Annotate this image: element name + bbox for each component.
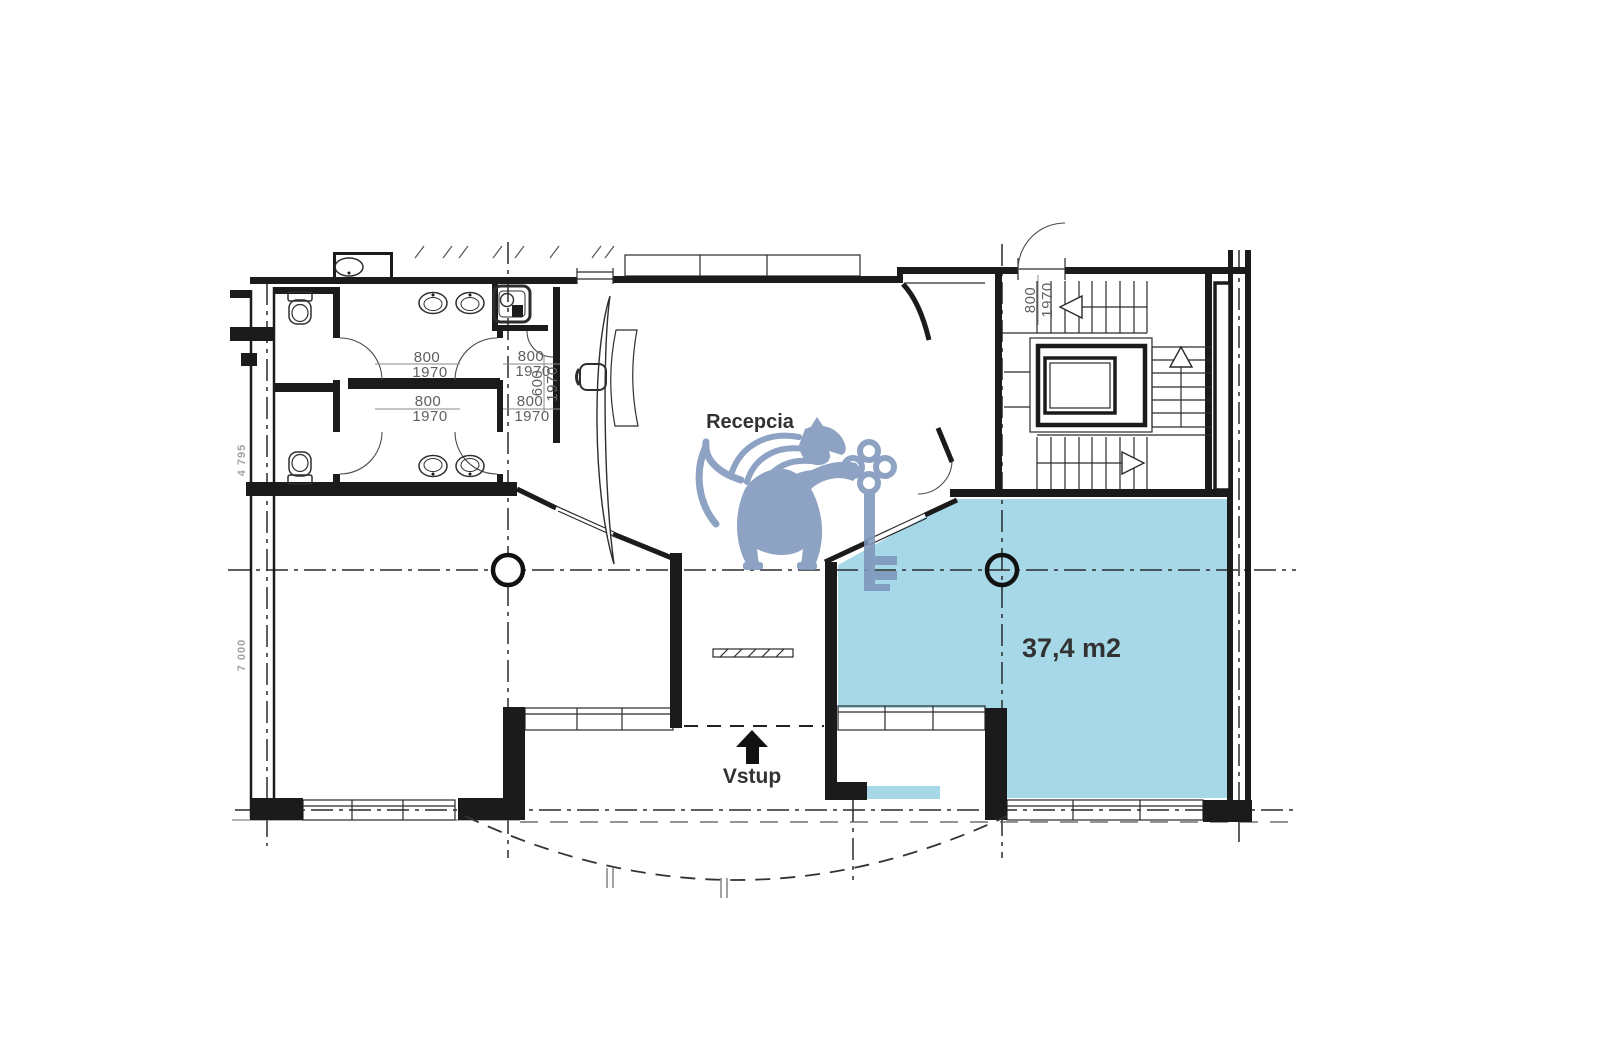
dim-label: 1970 xyxy=(514,408,549,425)
floor-plan-drawing: 800 1970 800 1970 800 1970 800 1970 600 … xyxy=(0,0,1606,1037)
roof-hatch-ticks xyxy=(415,246,614,258)
elevator-icon xyxy=(1004,338,1152,432)
dim-label-rotated: 800 xyxy=(1022,287,1039,314)
duct-shaft xyxy=(1215,283,1230,490)
toilet-icon xyxy=(288,292,312,324)
column-symbol xyxy=(493,555,523,585)
reception-label: Recepcia xyxy=(706,411,795,433)
cistern-icon xyxy=(335,258,363,276)
dim-label-rotated: 1970 xyxy=(544,366,561,401)
toilet-icon xyxy=(288,452,312,484)
dim-label-rotated: 1970 xyxy=(1039,282,1056,317)
floor-plan-page: 800 1970 800 1970 800 1970 800 1970 600 … xyxy=(0,0,1606,1037)
entrance-arrow-icon xyxy=(736,730,768,764)
area-label: 37,4 m2 xyxy=(1022,633,1121,663)
dim-label: 1970 xyxy=(412,364,447,381)
lion-key-watermark xyxy=(699,417,897,591)
facade-dim-label: 7 000 xyxy=(236,639,248,672)
entrance-canopy-arc xyxy=(465,816,1007,898)
lion-tail xyxy=(699,442,741,524)
facade-dim-label: 4 795 xyxy=(236,444,248,477)
mop-sink-icon xyxy=(494,286,530,322)
highlight-sill-strip xyxy=(867,786,940,799)
entrance-label: Vstup xyxy=(723,765,781,788)
dim-label: 1970 xyxy=(412,408,447,425)
